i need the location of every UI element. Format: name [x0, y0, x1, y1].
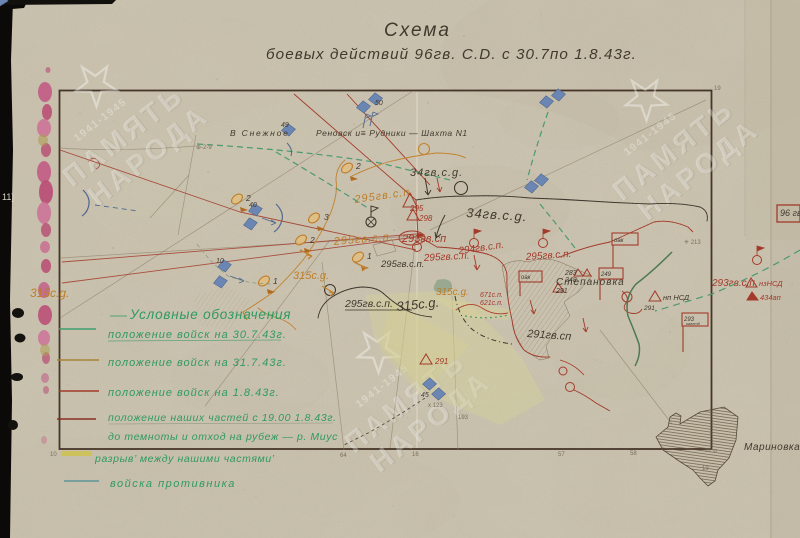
- svg-text:96 гв: 96 гв: [780, 208, 800, 218]
- svg-text:боевых действий 96гв. C.D.: боевых действий 96гв. C.D. с 30.7по 1.8.…: [266, 46, 637, 63]
- svg-text:291: 291: [555, 288, 568, 295]
- svg-text:64: 64: [340, 453, 347, 459]
- svg-text:положение войск на 1.8.43г.: положение войск на 1.8.43г.: [108, 387, 280, 399]
- svg-text:Степановка: Степановка: [556, 277, 625, 288]
- svg-text:х 123: х 123: [428, 403, 443, 409]
- svg-text:298: 298: [418, 214, 433, 223]
- svg-text:50: 50: [375, 100, 383, 107]
- svg-text:10: 10: [216, 258, 224, 265]
- svg-text:✳ 213: ✳ 213: [684, 239, 701, 246]
- svg-text:295: 295: [409, 204, 424, 213]
- svg-text:16: 16: [412, 452, 419, 458]
- svg-text:57: 57: [558, 452, 565, 458]
- svg-text:до темноты и отход на руб: до темноты и отход на рубеж — р. Миус: [108, 431, 338, 443]
- svg-text:⊕-2-9: ⊕-2-9: [196, 145, 212, 151]
- svg-text:войска противника: войска противника: [110, 478, 236, 490]
- svg-text:разрыв’ между нашими частями: разрыв’ между нашими частями’: [94, 453, 275, 465]
- svg-text:315с.g.: 315с.g.: [436, 287, 469, 298]
- svg-text:В Снежное: В Снежное: [230, 128, 290, 138]
- svg-text:19 тр: 19 тр: [705, 448, 717, 454]
- svg-text:положение войск на 30.7.43г: положение войск на 30.7.43г.: [108, 329, 287, 341]
- svg-text:45: 45: [421, 392, 429, 399]
- svg-text:34гв.с.g.: 34гв.с.g.: [410, 167, 463, 179]
- svg-text:положение войск на 31.7.43г: положение войск на 31.7.43г.: [108, 357, 287, 369]
- svg-text:1: 1: [273, 276, 278, 286]
- svg-text:19: 19: [714, 86, 721, 92]
- svg-text:49: 49: [281, 122, 289, 129]
- svg-text:315с.g.: 315с.g.: [30, 286, 69, 300]
- svg-text:193: 193: [458, 415, 469, 421]
- svg-text:671с.п.: 671с.п.: [480, 292, 503, 299]
- svg-text:40: 40: [249, 202, 257, 209]
- svg-text:293гв.с.п.: 293гв.с.п.: [711, 278, 758, 289]
- svg-text:положение наших частей с 1: положение наших частей с 19.00 1.8.43г.: [108, 412, 337, 424]
- svg-text:2: 2: [309, 235, 315, 245]
- svg-text:434ап: 434ап: [760, 293, 781, 302]
- svg-text:19: 19: [702, 466, 709, 472]
- svg-text:кавлтд: кавлтд: [686, 321, 701, 326]
- svg-text:291: 291: [643, 305, 655, 312]
- svg-text:нп НСД: нп НСД: [663, 293, 690, 302]
- svg-text:11]: 11]: [2, 192, 14, 202]
- svg-text:Реновск и≡ Рудники — Шахта N: Реновск и≡ Рудники — Шахта N1: [316, 128, 468, 138]
- svg-text:3: 3: [324, 212, 329, 222]
- svg-text:315с.g.: 315с.g.: [293, 270, 329, 282]
- svg-text:621с.п.: 621с.п.: [480, 300, 503, 307]
- svg-text:нзНСД: нзНСД: [759, 279, 783, 288]
- svg-text:295гв.с.п.: 295гв.с.п.: [344, 298, 393, 310]
- svg-text:295гв.с.п.: 295гв.с.п.: [380, 259, 424, 270]
- svg-text:оак: оак: [521, 275, 532, 281]
- svg-text:291: 291: [434, 357, 448, 366]
- svg-text:283: 283: [564, 270, 577, 277]
- svg-text:Условные обозначения: Условные обозначения: [129, 307, 291, 322]
- svg-text:Мариновка: Мариновка: [744, 442, 800, 453]
- svg-text:Схема: Схема: [384, 20, 451, 41]
- svg-text:2: 2: [355, 161, 361, 171]
- svg-text:10: 10: [50, 452, 57, 458]
- svg-text:1: 1: [367, 251, 372, 261]
- svg-text:58: 58: [630, 451, 637, 457]
- svg-text:оак: оак: [614, 238, 625, 244]
